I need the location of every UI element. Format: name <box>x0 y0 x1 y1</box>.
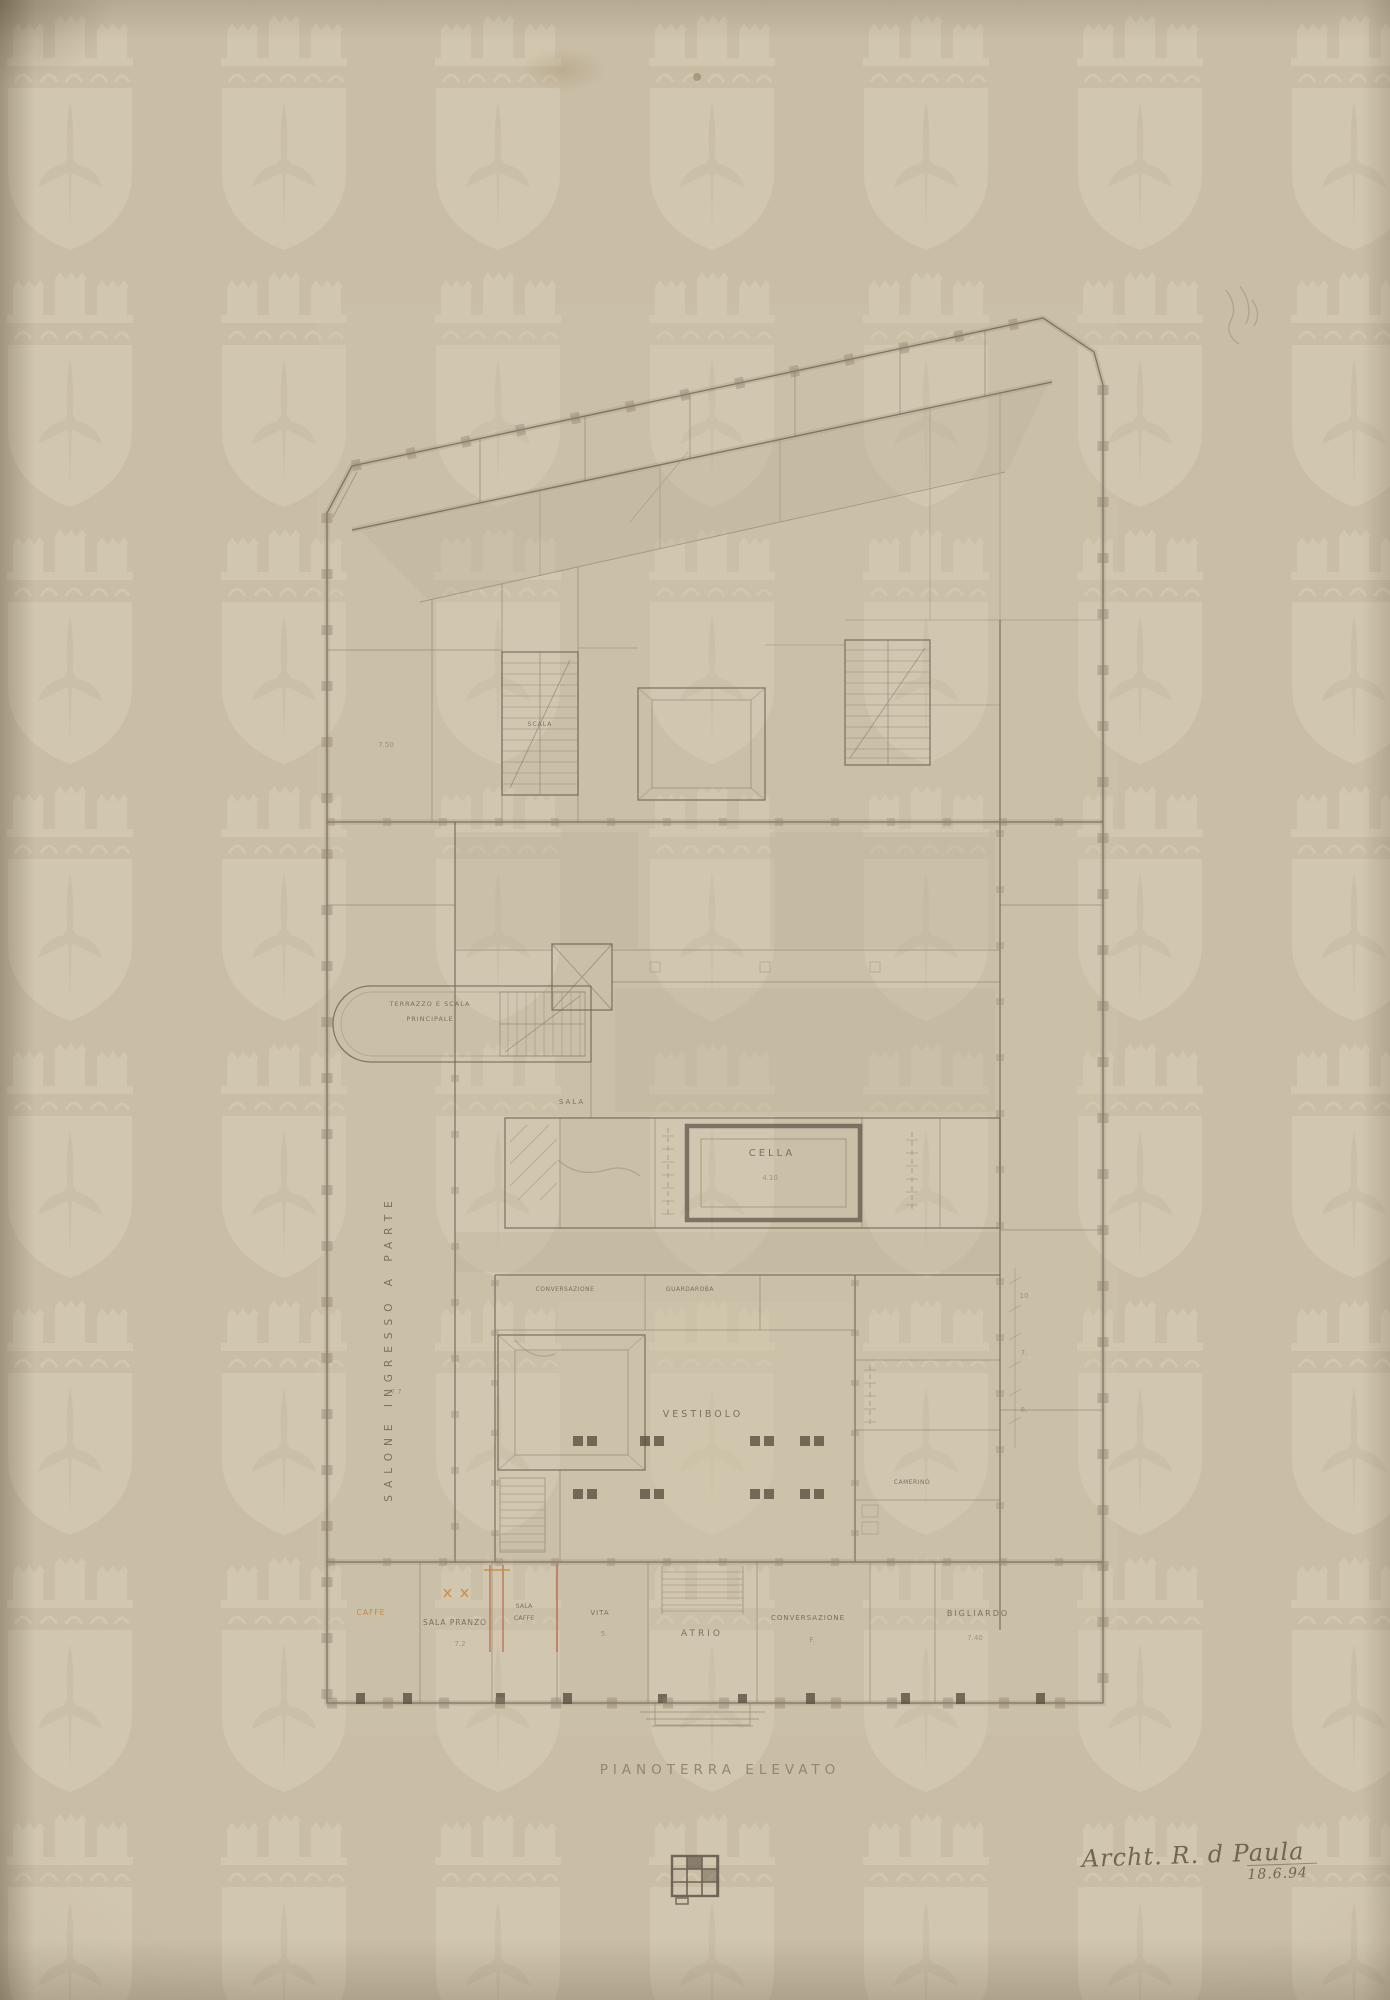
room-label-vita: VITA <box>590 1609 609 1617</box>
room-label-bigliardo: BIGLIARDO <box>947 1609 1009 1618</box>
dim-tick-3: 8. <box>1021 1406 1028 1414</box>
dim-sala-pranzo: 7.2 <box>454 1640 465 1648</box>
wing-label-salone: SALONE INGRESSO A PARTE <box>383 1194 395 1502</box>
scanned-floor-plan-sheet: CELLA 4.10 VESTIBOLO ATRIO BIGLIARDO 7.4… <box>0 0 1390 2000</box>
room-label-guardaroba: GUARDAROBA <box>666 1286 714 1293</box>
room-label-sala-pranzo: SALA PRANZO <box>423 1618 487 1627</box>
dim-vita: 5. <box>601 1630 608 1638</box>
room-label-sala-caffe-1: SALA <box>516 1602 533 1610</box>
dim-cella: 4.10 <box>762 1174 778 1182</box>
room-label-camerino: CAMERINO <box>894 1479 930 1486</box>
signature-date: 18.6.94 <box>1247 1863 1318 1883</box>
room-label-conversazione-top: CONVERSAZIONE <box>536 1286 595 1293</box>
room-label-terrazzo-1: TERRAZZO E SCALA <box>389 1000 471 1008</box>
room-label-scala: SCALA <box>528 721 553 728</box>
room-label-caffe-orange: CAFFE <box>357 1608 386 1617</box>
paper-speck <box>693 73 701 81</box>
dim-tick-2: 7. <box>1021 1349 1028 1357</box>
dim-tick-1: 10 <box>1020 1292 1029 1300</box>
room-label-vestibolo: VESTIBOLO <box>663 1409 743 1420</box>
dim-7-50: 7.50 <box>378 741 394 749</box>
dim-conversazione: F. <box>809 1636 814 1644</box>
room-label-sala-mid: SALA <box>559 1098 585 1106</box>
room-label-atrio: ATRIO <box>681 1629 723 1639</box>
dim-7-7: 7.7 <box>390 1388 401 1396</box>
room-label-cella: CELLA <box>749 1148 796 1159</box>
floor-plan-drawing: CELLA 4.10 VESTIBOLO ATRIO BIGLIARDO 7.4… <box>0 0 1390 2000</box>
room-label-conversazione-bottom: CONVERSAZIONE <box>771 1614 845 1622</box>
sheet-caption: PIANOTERRA ELEVATO <box>565 1762 875 1778</box>
dim-bigliardo: 7.40 <box>967 1634 983 1642</box>
room-label-sala-caffe-2: CAFFE <box>514 1614 535 1622</box>
room-label-terrazzo-2: PRINCIPALE <box>406 1015 453 1023</box>
